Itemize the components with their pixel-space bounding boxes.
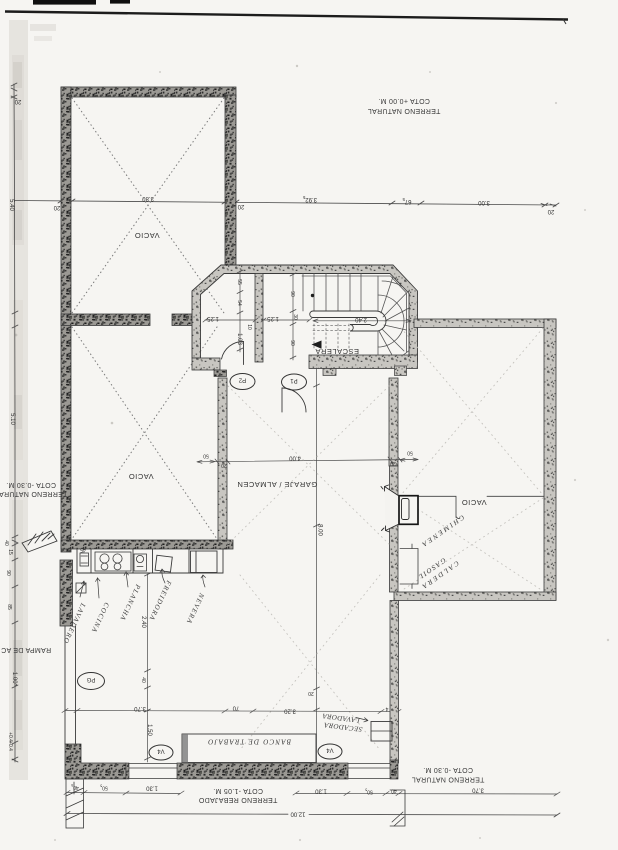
svg-text:40: 40 <box>140 677 146 683</box>
svg-text:5.10: 5.10 <box>9 413 15 425</box>
svg-text:GARAJE / ALMACEN: GARAJE / ALMACEN <box>237 480 317 489</box>
svg-text:3.00: 3.00 <box>478 199 490 205</box>
svg-text:VACIO: VACIO <box>461 498 486 507</box>
svg-text:ESCALERA: ESCALERA <box>315 347 359 356</box>
svg-text:45: 45 <box>80 547 86 553</box>
svg-text:20: 20 <box>308 690 314 696</box>
svg-text:1.00⁵: 1.00⁵ <box>11 672 18 687</box>
svg-text:70: 70 <box>232 705 239 711</box>
svg-text:20: 20 <box>53 204 60 210</box>
svg-text:50: 50 <box>203 453 209 459</box>
svg-text:VACIO: VACIO <box>128 472 153 481</box>
svg-text:20: 20 <box>221 462 227 468</box>
svg-text:TERRENO NATURAL: TERRENO NATURAL <box>0 490 67 497</box>
svg-text:1.25: 1.25 <box>267 315 279 321</box>
svg-text:COTA -1.05 M.: COTA -1.05 M. <box>213 787 263 794</box>
svg-text:85: 85 <box>6 604 12 610</box>
svg-text:3.70: 3.70 <box>472 787 484 793</box>
svg-text:90: 90 <box>289 291 295 297</box>
svg-text:1.30: 1.30 <box>315 788 327 794</box>
svg-text:20: 20 <box>547 208 554 214</box>
svg-text:10: 10 <box>246 324 252 330</box>
svg-text:2.40: 2.40 <box>140 616 146 628</box>
svg-text:90: 90 <box>5 570 11 576</box>
svg-text:1.03: 1.03 <box>236 333 242 345</box>
svg-text:54: 54 <box>236 300 242 306</box>
svg-text:COTA +0.00 M.: COTA +0.00 M. <box>378 97 430 104</box>
svg-text:8.00: 8.00 <box>317 524 323 536</box>
svg-text:TERRENO REBAJADO: TERRENO REBAJADO <box>198 796 277 803</box>
svg-text:1.30: 1.30 <box>146 785 158 791</box>
svg-text:20: 20 <box>390 460 396 466</box>
svg-text:V4: V4 <box>157 748 165 754</box>
svg-text:90: 90 <box>289 340 295 346</box>
svg-text:20: 20 <box>237 203 244 209</box>
svg-text:PG: PG <box>86 676 95 682</box>
svg-text:12.00: 12.00 <box>290 811 306 817</box>
svg-text:V4: V4 <box>326 747 334 753</box>
svg-text:3.70: 3.70 <box>134 705 146 711</box>
svg-text:TERRENO NATURAL: TERRENO NATURAL <box>412 776 485 783</box>
svg-text:50: 50 <box>407 450 413 456</box>
svg-text:3.80: 3.80 <box>142 195 154 201</box>
svg-text:1.25: 1.25 <box>207 315 219 321</box>
svg-text:4.00: 4.00 <box>289 455 301 461</box>
svg-text:40: 40 <box>3 540 9 546</box>
svg-text:P2: P2 <box>238 377 246 383</box>
svg-text:TERRENO NATURAL: TERRENO NATURAL <box>368 107 441 114</box>
svg-text:COTA -0.30 M.: COTA -0.30 M. <box>423 766 473 773</box>
svg-text:2.40: 2.40 <box>355 316 367 322</box>
svg-text:VACIO: VACIO <box>134 231 159 240</box>
svg-text:55: 55 <box>236 279 242 285</box>
svg-text:30: 30 <box>292 314 298 320</box>
svg-text:1.50: 1.50 <box>146 724 152 736</box>
svg-text:P1: P1 <box>290 377 298 383</box>
svg-text:40: 40 <box>391 788 397 794</box>
svg-text:COTA -0.30 M.: COTA -0.30 M. <box>6 481 56 488</box>
svg-text:4: 4 <box>385 706 388 712</box>
svg-text:3.20: 3.20 <box>284 708 296 714</box>
svg-text:BANCO DE TRABAJO: BANCO DE TRABAJO <box>207 738 291 746</box>
svg-text:15: 15 <box>7 549 13 555</box>
svg-text:RAMPA DE AC: RAMPA DE AC <box>1 646 51 653</box>
svg-text:+0.4: +0.4 <box>7 741 13 751</box>
svg-text:5.40: 5.40 <box>8 199 14 211</box>
svg-text:20: 20 <box>14 98 21 104</box>
